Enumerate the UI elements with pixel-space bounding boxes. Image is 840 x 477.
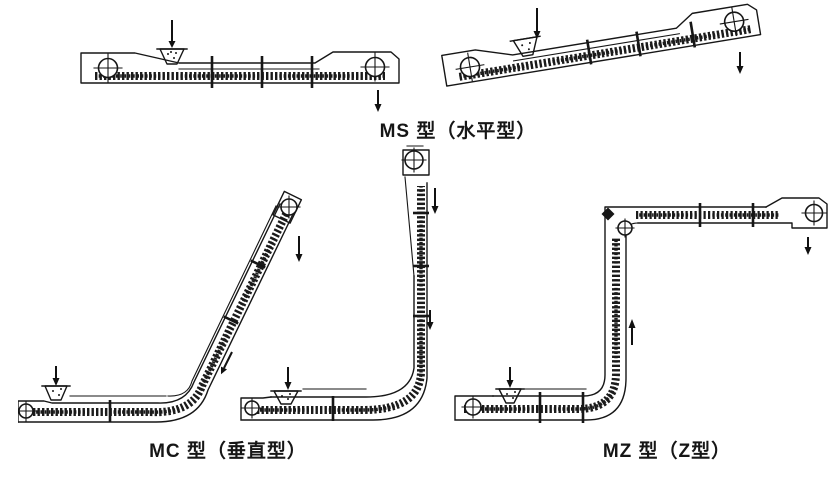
flange-ticks [333,213,429,421]
ms-horizontal-conveyor-diagram [75,6,410,118]
mz-z-conveyor-diagram [448,183,838,438]
discharge-arrow-icon [375,90,382,112]
tail-wheel-icon [242,398,262,418]
feed-arrow-icon [53,366,60,386]
conveyor-outline-inner [493,207,766,396]
mc-caption: MC 型（垂直型） [98,436,358,463]
head-box [402,146,429,175]
conveyor-outline-bottom [455,233,626,420]
elbow-diamond-icon [602,208,615,221]
elbow-corner [602,208,635,238]
flange-ticks [540,203,753,423]
ms-inclined-conveyor-diagram [438,0,778,112]
flow-arrow-icon [221,352,232,374]
figure-canvas: MS 型（水平型） [0,0,840,477]
material-stream [459,29,751,77]
conveyor-outline-top [271,276,414,397]
feed-hopper [42,386,70,400]
feed-arrow-icon [507,367,514,388]
flow-arrow-icon [629,319,636,345]
discharge-arrow-icon [737,52,744,74]
material-stream [464,215,780,409]
feed-arrow-icon [169,20,176,48]
feed-arrow-icon [534,8,541,39]
head-wheel-icon [802,201,826,225]
mc-vertical-conveyor-diagram [233,138,448,436]
feed-arrow-icon [285,367,292,390]
discharge-arrow-icon [432,188,439,214]
tail-wheel-icon [18,401,36,421]
material-stream [248,186,421,410]
mz-caption: MZ 型（Z型） [537,436,797,463]
conveyor-outline-bottom [241,183,427,420]
tail-wheel-icon [462,396,484,418]
frame-line [405,177,414,276]
discharge-arrow-icon [805,237,812,255]
